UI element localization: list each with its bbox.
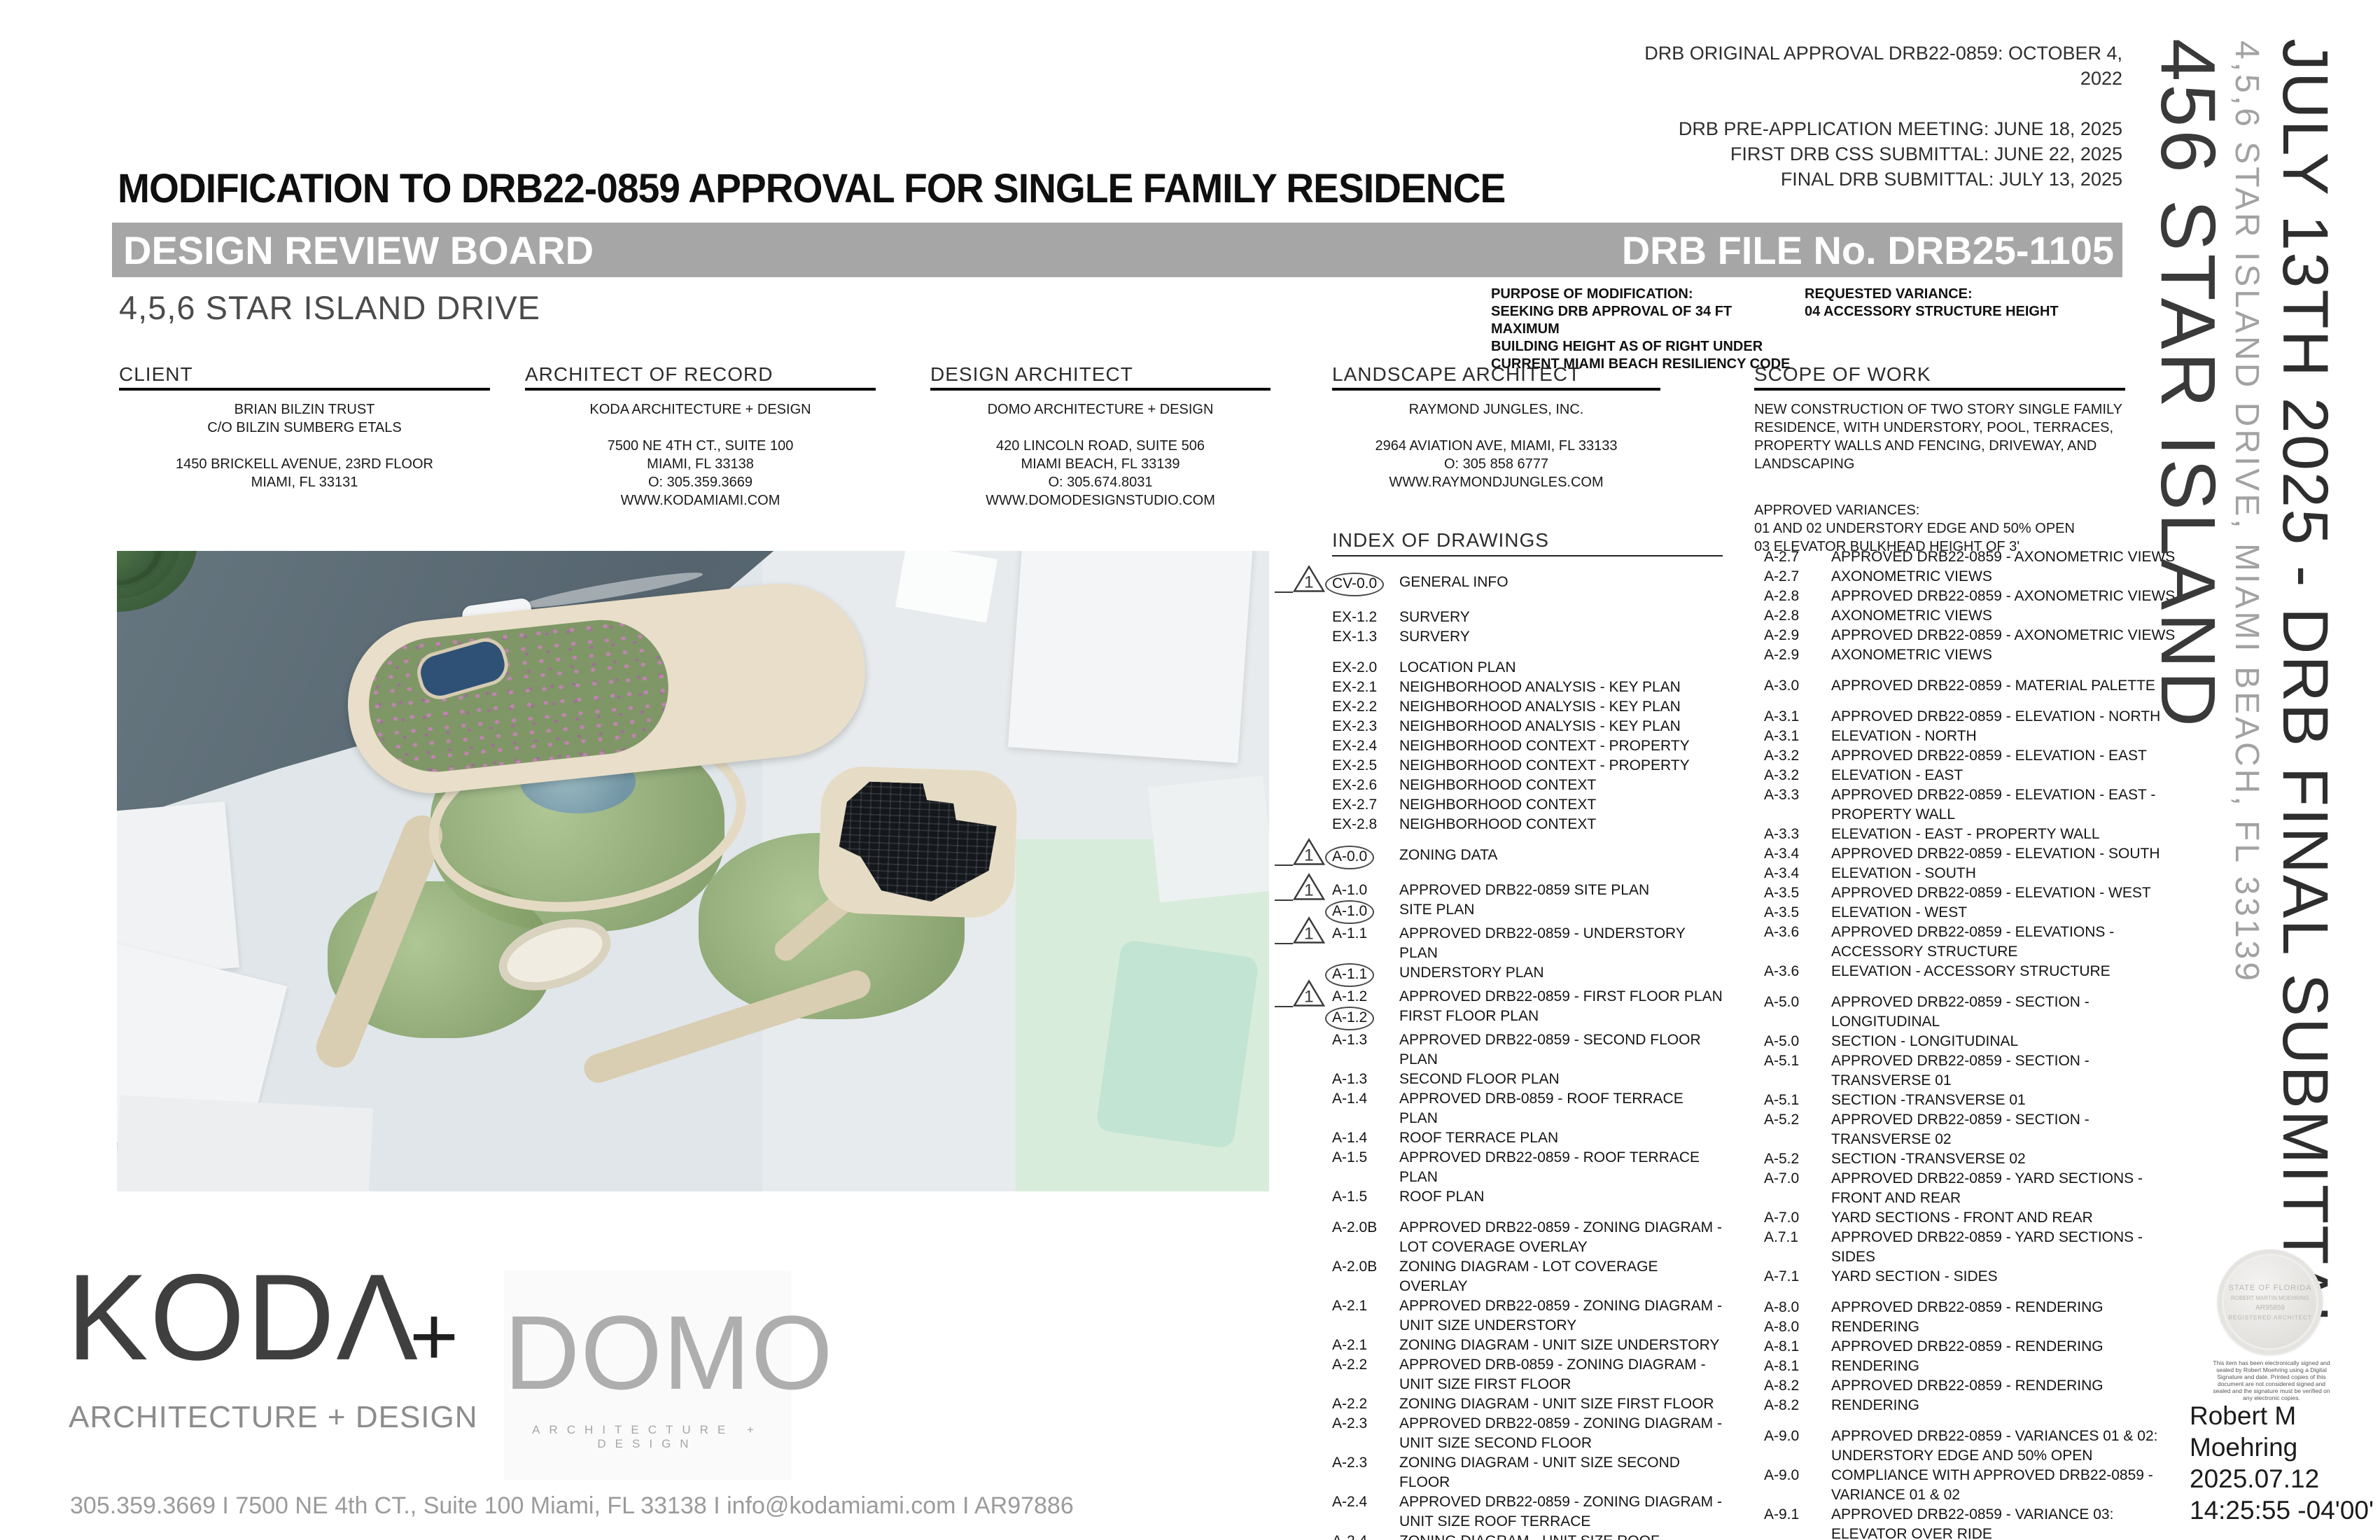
title-sheet: DRB ORIGINAL APPROVAL DRB22-0859: OCTOBE…	[0, 0, 2380, 1540]
sheet-number: A-2.9	[1764, 645, 1831, 665]
text-line: 2022	[1644, 66, 2122, 91]
sheet-number: A-3.2	[1764, 746, 1831, 766]
sheet-title: NEIGHBORHOOD CONTEXT - PROPERTY	[1399, 756, 1724, 776]
sheet-number: A-5.2	[1764, 1110, 1831, 1130]
sheet-number: EX-2.7	[1332, 795, 1399, 815]
sheet-title: APPROVED DRB22-0859 - YARD SECTIONS - FR…	[1831, 1169, 2177, 1208]
text-line	[525, 419, 876, 437]
text-line: 14:25:55 -04'00'	[2190, 1494, 2374, 1526]
sheet-number: A-3.0	[1764, 676, 1831, 696]
drawing-index-left-column: 1CV-0.0GENERAL INFOEX-1.2SURVERYEX-1.3SU…	[1332, 573, 1724, 1540]
drawing-index-row: A-2.4ZONING DIAGRAM - UNIT SIZE ROOF TER…	[1332, 1532, 1724, 1540]
sheet-title: SECOND FLOOR PLAN	[1399, 1070, 1724, 1089]
requested-variance: REQUESTED VARIANCE: 04 ACCESSORY STRUCTU…	[1805, 286, 2120, 321]
sheet-title: APPROVED DRB22-0859 - ELEVATION - SOUTH	[1831, 844, 2177, 864]
drawing-index-row: EX-2.3NEIGHBORHOOD ANALYSIS - KEY PLAN	[1332, 717, 1724, 736]
column-heading: LANDSCAPE ARCHITECT	[1332, 364, 1660, 385]
text-line: APPROVED VARIANCES:	[1754, 501, 2125, 519]
column-lines: DOMO ARCHITECTURE + DESIGN420 LINCOLN RO…	[930, 400, 1270, 510]
drawing-index-right-column: A-2.7APPROVED DRB22-0859 - AXONOMETRIC V…	[1764, 547, 2177, 1540]
drawing-index-row: A-2.0BZONING DIAGRAM - LOT COVERAGE OVER…	[1332, 1257, 1724, 1296]
sheet-title: RENDERING	[1831, 1357, 2177, 1376]
sheet-title: GENERAL INFO	[1399, 573, 1724, 592]
seal-disclaimer-text: This item has been electronically signed…	[2209, 1359, 2334, 1401]
domo-logo: DOMO	[504, 1300, 791, 1405]
drawing-index-row: 1CV-0.0GENERAL INFO	[1332, 573, 1724, 596]
digital-signature: Robert MMoehring2025.07.1214:25:55 -04'0…	[2190, 1400, 2374, 1526]
purpose-lines: SEEKING DRB APPROVAL OF 34 FT MAXIMUMBUI…	[1491, 303, 1802, 373]
sheet-title: APPROVED DRB22-0859 - SECOND FLOOR PLAN	[1399, 1030, 1724, 1070]
drawing-index-row: A-2.0BAPPROVED DRB22-0859 - ZONING DIAGR…	[1332, 1218, 1724, 1257]
sheet-number: A-3.5	[1764, 903, 1831, 923]
drawing-index-row: A-2.3APPROVED DRB22-0859 - ZONING DIAGRA…	[1332, 1414, 1724, 1453]
drawing-index-row: A-2.1APPROVED DRB22-0859 - ZONING DIAGRA…	[1332, 1296, 1724, 1336]
sheet-number: A-9.0	[1764, 1466, 1831, 1485]
sheet-title: YARD SECTION - SIDES	[1831, 1267, 2177, 1287]
drawing-index-row: EX-2.7NEIGHBORHOOD CONTEXT	[1332, 795, 1724, 815]
text-line: O: 305 858 6777	[1332, 455, 1660, 473]
sheet-title: APPROVED DRB22-0859 SITE PLAN	[1399, 881, 1724, 900]
svg-text:1: 1	[1304, 846, 1314, 864]
sheet-number: A-8.1	[1764, 1357, 1831, 1376]
text-line: KODA ARCHITECTURE + DESIGN	[525, 400, 876, 419]
text-line	[1332, 419, 1660, 437]
sheet-number: A-3.1	[1764, 707, 1831, 727]
sheet-title: APPROVED DRB-0859 - ROOF TERRACE PLAN	[1399, 1089, 1724, 1128]
drawing-index-row: A-2.9AXONOMETRIC VIEWS	[1764, 645, 2177, 665]
drawing-index-row: A-2.9APPROVED DRB22-0859 - AXONOMETRIC V…	[1764, 626, 2177, 645]
drawing-index-row: A-7.0APPROVED DRB22-0859 - YARD SECTIONS…	[1764, 1169, 2177, 1208]
column-rule	[119, 388, 490, 391]
drawing-index-row: A-7.0YARD SECTIONS - FRONT AND REAR	[1764, 1208, 2177, 1228]
column-heading: ARCHITECT OF RECORD	[525, 364, 876, 385]
sheet-number: A-9.1	[1764, 1505, 1831, 1525]
drawing-index-row: A-2.2APPROVED DRB-0859 - ZONING DIAGRAM …	[1332, 1355, 1724, 1394]
drawing-index-row: A-3.4ELEVATION - SOUTH	[1764, 864, 2177, 883]
sheet-number: A-3.3	[1764, 825, 1831, 844]
drawing-index-row: 1A-1.0APPROVED DRB22-0859 SITE PLAN	[1332, 881, 1724, 900]
text-line: C/O BILZIN SUMBERG ETALS	[119, 419, 490, 437]
drawing-index-row: A-5.1APPROVED DRB22-0859 - SECTION - TRA…	[1764, 1051, 2177, 1091]
drawing-index-row: A-3.3APPROVED DRB22-0859 - ELEVATION - E…	[1764, 785, 2177, 825]
text-line: DRB PRE-APPLICATION MEETING: JUNE 18, 20…	[1644, 116, 2122, 141]
sheet-number: EX-2.2	[1332, 697, 1399, 717]
variance-lines: 04 ACCESSORY STRUCTURE HEIGHT	[1805, 303, 2120, 321]
koda-tagline: ARCHITECTURE + DESIGN	[69, 1400, 478, 1435]
text-line: O: 305.359.3669	[525, 473, 876, 491]
sidebar-project-address: 4,5,6 STAR ISLAND DRIVE, MIAMI BEACH, FL…	[2227, 41, 2266, 983]
column-lines: RAYMOND JUNGLES, INC.2964 AVIATION AVE, …	[1332, 400, 1660, 491]
sheet-title: RENDERING	[1831, 1317, 2177, 1337]
sheet-title: APPROVED DRB22-0859 - SECTION - TRANSVER…	[1831, 1110, 2177, 1149]
drawing-index-row: A-8.1RENDERING	[1764, 1357, 2177, 1376]
sheet-title: ELEVATION - NORTH	[1831, 727, 2177, 746]
column-rule	[1332, 388, 1660, 391]
purpose-of-modification: PURPOSE OF MODIFICATION: SEEKING DRB APP…	[1491, 286, 1802, 373]
drawing-index-row: A-5.2APPROVED DRB22-0859 - SECTION - TRA…	[1764, 1110, 2177, 1149]
sheet-number: A-3.6	[1764, 923, 1831, 942]
drawing-index-row: EX-1.2SURVERY	[1332, 608, 1724, 627]
sheet-title: NEIGHBORHOOD CONTEXT	[1399, 795, 1724, 815]
sheet-title: SECTION -TRANSVERSE 01	[1831, 1091, 2177, 1110]
plus-sign: +	[409, 1288, 458, 1385]
render-neighbor-building	[1148, 776, 1269, 902]
text-line: 7500 NE 4TH CT., SUITE 100	[525, 437, 876, 455]
text-line: BUILDING HEIGHT AS OF RIGHT UNDER	[1491, 338, 1802, 356]
drawing-index-row: A-3.1ELEVATION - NORTH	[1764, 727, 2177, 746]
revision-cloud-icon: A-1.1	[1325, 963, 1374, 987]
sheet-title: ELEVATION - SOUTH	[1831, 864, 2177, 883]
sheet-number: A-1.4	[1332, 1128, 1399, 1148]
sheet-number: A-8.2	[1764, 1376, 1831, 1396]
sheet-number: A-1.2	[1332, 1007, 1399, 1030]
svg-text:1: 1	[1304, 987, 1314, 1006]
sheet-title: ELEVATION - WEST	[1831, 903, 2177, 923]
sheet-number: A-2.2	[1332, 1355, 1399, 1375]
sheet-number: A-7.0	[1764, 1169, 1831, 1189]
render-flower-roof-garden	[362, 613, 675, 779]
sheet-number: EX-2.4	[1332, 736, 1399, 756]
text-line: Robert M	[2190, 1400, 2374, 1431]
drawing-index-row: A-5.0APPROVED DRB22-0859 - SECTION - LON…	[1764, 993, 2177, 1032]
text-line: 2964 AVIATION AVE, MIAMI, FL 33133	[1332, 437, 1660, 455]
page-title: MODIFICATION TO DRB22-0859 APPROVAL FOR …	[118, 165, 1505, 212]
sheet-title: AXONOMETRIC VIEWS	[1831, 645, 2177, 665]
drawing-index-row: A-3.2ELEVATION - EAST	[1764, 766, 2177, 785]
column-rule	[930, 388, 1270, 391]
sheet-number: EX-2.1	[1332, 678, 1399, 697]
render-solar-panels	[837, 780, 998, 904]
sheet-title: APPROVED DRB22-0859 - UNDERSTORY PLAN	[1399, 924, 1724, 963]
footer-contact-line: 305.359.3669 I 7500 NE 4th CT., Suite 10…	[70, 1492, 1074, 1520]
drawing-index-row: 1A-1.1APPROVED DRB22-0859 - UNDERSTORY P…	[1332, 924, 1724, 963]
domo-logo-block: DOMO ARCHITECTURE + DESIGN	[504, 1270, 791, 1480]
sheet-title: AXONOMETRIC VIEWS	[1831, 567, 2177, 587]
text-line: 01 AND 02 UNDERSTORY EDGE AND 50% OPEN	[1754, 519, 2125, 538]
sheet-number: A-1.4	[1332, 1089, 1399, 1109]
submittal-dates: DRB ORIGINAL APPROVAL DRB22-0859: OCTOBE…	[1644, 41, 2122, 192]
drawing-index-row: EX-2.2NEIGHBORHOOD ANALYSIS - KEY PLAN	[1332, 697, 1724, 717]
drawing-index-row: A-2.4APPROVED DRB22-0859 - ZONING DIAGRA…	[1332, 1492, 1724, 1532]
sheet-title: UNDERSTORY PLAN	[1399, 963, 1724, 983]
drawing-index-row: A-7.1YARD SECTION - SIDES	[1764, 1267, 2177, 1287]
scope-paragraph: NEW CONSTRUCTION OF TWO STORY SINGLE FAM…	[1754, 400, 2125, 473]
text-line	[1644, 91, 2122, 116]
sheet-title: APPROVED DRB22-0859 - MATERIAL PALETTE	[1831, 676, 2177, 696]
text-line: BRIAN BILZIN TRUST	[119, 400, 490, 419]
sheet-number: A-2.1	[1332, 1296, 1399, 1316]
sheet-title: APPROVED DRB22-0859 - ELEVATION - EAST -…	[1831, 785, 2177, 825]
sheet-number: EX-1.2	[1332, 608, 1399, 627]
sheet-number: A-1.1	[1332, 963, 1399, 987]
sheet-title: ZONING DIAGRAM - UNIT SIZE ROOF TERRACE	[1399, 1532, 1724, 1540]
drawing-index-row: EX-2.5NEIGHBORHOOD CONTEXT - PROPERTY	[1332, 756, 1724, 776]
sheet-title: APPROVED DRB22-0859 - FIRST FLOOR PLAN	[1399, 987, 1724, 1007]
sidebar-submittal-title: JULY 13TH 2025 - DRB FINAL SUBMITTAL	[2268, 38, 2341, 1343]
band-drb-file-number: DRB FILE No. DRB25-1105	[1622, 223, 2114, 277]
architect-seal: STATE OF FLORIDA ROBERT MARTIN MOEHRING …	[2218, 1249, 2323, 1354]
contact-column-client: CLIENTBRIAN BILZIN TRUSTC/O BILZIN SUMBE…	[119, 364, 490, 491]
revision-triangle-icon: 1	[1293, 916, 1325, 945]
contact-column-landscape-architect: LANDSCAPE ARCHITECTRAYMOND JUNGLES, INC.…	[1332, 364, 1660, 491]
drawing-index-row: A-3.1APPROVED DRB22-0859 - ELEVATION - N…	[1764, 707, 2177, 727]
sheet-number: A-2.3	[1332, 1453, 1399, 1473]
revision-triangle-icon: 1	[1293, 837, 1325, 867]
drawing-index-row: A-1.4ROOF TERRACE PLAN	[1332, 1128, 1724, 1148]
svg-text:1: 1	[1304, 573, 1314, 591]
sheet-title: APPROVED DRB22-0859 - ELEVATION - WEST	[1831, 883, 2177, 903]
drawing-index-row: A-8.2APPROVED DRB22-0859 - RENDERING	[1764, 1376, 2177, 1396]
column-lines: KODA ARCHITECTURE + DESIGN7500 NE 4TH CT…	[525, 400, 876, 510]
render-neighbor-pool	[1095, 939, 1259, 1149]
drawing-index-row: A-3.0APPROVED DRB22-0859 - MATERIAL PALE…	[1764, 676, 2177, 696]
band-design-review-board: DESIGN REVIEW BOARD	[123, 223, 594, 277]
text-line: RAYMOND JUNGLES, INC.	[1332, 400, 1660, 419]
sheet-number: A-3.4	[1764, 864, 1831, 883]
sheet-number: A-5.0	[1764, 993, 1831, 1012]
revision-triangle-icon: 1	[1293, 979, 1325, 1008]
drawing-index-row: A.7.1APPROVED DRB22-0859 - YARD SECTIONS…	[1764, 1228, 2177, 1267]
text-line: MIAMI BEACH, FL 33139	[930, 455, 1270, 473]
drawing-index-row: A-1.2FIRST FLOOR PLAN	[1332, 1007, 1724, 1030]
sheet-title: ELEVATION - EAST	[1831, 766, 2177, 785]
drawing-index-row: A-9.0COMPLIANCE WITH APPROVED DRB22-0859…	[1764, 1466, 2177, 1505]
sheet-number: A-7.0	[1764, 1208, 1831, 1228]
sheet-number: A-8.1	[1764, 1337, 1831, 1357]
sheet-number: A-2.4	[1332, 1532, 1399, 1540]
text-line	[930, 419, 1270, 437]
drawing-index-row: A-5.0SECTION - LONGITUDINAL	[1764, 1032, 2177, 1051]
revision-cloud-icon: A-1.2	[1325, 1007, 1374, 1030]
drawing-index-row: A-3.5APPROVED DRB22-0859 - ELEVATION - W…	[1764, 883, 2177, 903]
column-heading: CLIENT	[119, 364, 490, 385]
drawing-index-row: A-1.5APPROVED DRB22-0859 - ROOF TERRACE …	[1332, 1148, 1724, 1187]
drawing-index-row: A-1.3SECOND FLOOR PLAN	[1332, 1070, 1724, 1089]
sheet-title: APPROVED DRB22-0859 - AXONOMETRIC VIEWS	[1831, 547, 2177, 567]
domo-tagline: ARCHITECTURE + DESIGN	[504, 1423, 791, 1451]
text-line: SEEKING DRB APPROVAL OF 34 FT MAXIMUM	[1491, 303, 1802, 338]
sheet-title: NEIGHBORHOOD CONTEXT	[1399, 776, 1724, 795]
drawing-index-row: EX-2.1NEIGHBORHOOD ANALYSIS - KEY PLAN	[1332, 678, 1724, 697]
drawing-index-row: A-1.5ROOF PLAN	[1332, 1187, 1724, 1207]
sheet-number: A-2.3	[1332, 1414, 1399, 1434]
sheet-title: ZONING DIAGRAM - LOT COVERAGE OVERLAY	[1399, 1257, 1724, 1296]
drawing-index-row: A-5.2SECTION -TRANSVERSE 02	[1764, 1149, 2177, 1169]
text-line	[119, 437, 490, 455]
sheet-number: A-2.8	[1764, 606, 1831, 626]
drawing-index-row: A-9.1APPROVED DRB22-0859 - VARIANCE 03: …	[1764, 1505, 2177, 1540]
sheet-title: APPROVED DRB22-0859 - ZONING DIAGRAM - U…	[1399, 1414, 1724, 1453]
revision-triangle-icon: 1	[1293, 564, 1325, 594]
sheet-number: A-8.2	[1764, 1396, 1831, 1415]
sheet-title: SECTION - LONGITUDINAL	[1831, 1032, 2177, 1051]
sheet-title: APPROVED DRB22-0859 - VARIANCES 01 & 02:…	[1831, 1427, 2177, 1466]
sheet-title: APPROVED DRB22-0859 - ZONING DIAGRAM - U…	[1399, 1296, 1724, 1336]
sheet-number: A-3.3	[1764, 785, 1831, 805]
sheet-number: A-2.8	[1764, 587, 1831, 606]
drawing-index-row: A-2.8APPROVED DRB22-0859 - AXONOMETRIC V…	[1764, 587, 2177, 606]
drawing-index-row: 1A-1.2APPROVED DRB22-0859 - FIRST FLOOR …	[1332, 987, 1724, 1007]
sheet-number: A-5.1	[1764, 1051, 1831, 1071]
text-line: Moehring	[2190, 1431, 2374, 1463]
sheet-number: A-3.1	[1764, 727, 1831, 746]
scope-of-work: SCOPE OF WORK NEW CONSTRUCTION OF TWO ST…	[1754, 364, 2125, 556]
drawing-index-row: A-3.6ELEVATION - ACCESSORY STRUCTURE	[1764, 962, 2177, 981]
sheet-title: APPROVED DRB22-0859 - RENDERING	[1831, 1298, 2177, 1317]
render-accessory-structure	[817, 765, 1018, 919]
drawing-index-row: EX-2.4NEIGHBORHOOD CONTEXT - PROPERTY	[1332, 736, 1724, 756]
drawing-index-row: A-8.1APPROVED DRB22-0859 - RENDERING	[1764, 1337, 2177, 1357]
drb-band: DESIGN REVIEW BOARD DRB FILE No. DRB25-1…	[112, 223, 2122, 277]
sheet-title: SITE PLAN	[1399, 900, 1724, 920]
sheet-number: A-1.3	[1332, 1070, 1399, 1089]
drawing-index-row: A-3.2APPROVED DRB22-0859 - ELEVATION - E…	[1764, 746, 2177, 766]
scope-rule	[1754, 388, 2125, 391]
contact-column-design-architect: DESIGN ARCHITECTDOMO ARCHITECTURE + DESI…	[930, 364, 1270, 510]
sheet-title: ZONING DIAGRAM - UNIT SIZE FIRST FLOOR	[1399, 1394, 1724, 1414]
sheet-number: A-3.5	[1764, 883, 1831, 903]
text-line: WWW.KODAMIAMI.COM	[525, 491, 876, 510]
sheet-title: ROOF PLAN	[1399, 1187, 1724, 1207]
sheet-title: FIRST FLOOR PLAN	[1399, 1007, 1724, 1026]
column-rule	[525, 388, 876, 391]
sheet-title: NEIGHBORHOOD ANALYSIS - KEY PLAN	[1399, 697, 1724, 717]
purpose-heading: PURPOSE OF MODIFICATION:	[1491, 286, 1802, 303]
drawing-index-row: A-3.6APPROVED DRB22-0859 - ELEVATIONS - …	[1764, 923, 2177, 962]
drawing-index-row: A-2.1ZONING DIAGRAM - UNIT SIZE UNDERSTO…	[1332, 1336, 1724, 1355]
sheet-title: APPROVED DRB22-0859 - YARD SECTIONS - SI…	[1831, 1228, 2177, 1267]
sheet-number: A-2.4	[1332, 1492, 1399, 1512]
drawing-index-row: 1A-0.0ZONING DATA	[1332, 846, 1724, 869]
sheet-title: APPROVED DRB22-0859 - AXONOMETRIC VIEWS	[1831, 626, 2177, 645]
sheet-title: ELEVATION - ACCESSORY STRUCTURE	[1831, 962, 2177, 981]
text-line: O: 305.674.8031	[930, 473, 1270, 491]
sheet-title: NEIGHBORHOOD CONTEXT - PROPERTY	[1399, 736, 1724, 756]
drawing-index-row: A-5.1SECTION -TRANSVERSE 01	[1764, 1091, 2177, 1110]
text-line: 1450 BRICKELL AVENUE, 23RD FLOOR	[119, 455, 490, 473]
sheet-number: EX-2.5	[1332, 756, 1399, 776]
drawing-index-row: A-2.8AXONOMETRIC VIEWS	[1764, 606, 2177, 626]
text-line: WWW.RAYMONDJUNGLES.COM	[1332, 473, 1660, 491]
sheet-title: APPROVED DRB22-0859 - VARIANCE 03: ELEVA…	[1831, 1505, 2177, 1540]
drawing-index-row: A-1.0SITE PLAN	[1332, 900, 1724, 924]
column-lines: BRIAN BILZIN TRUSTC/O BILZIN SUMBERG ETA…	[119, 400, 490, 491]
sheet-number: CV-0.0	[1332, 573, 1399, 596]
sheet-title: ELEVATION - EAST - PROPERTY WALL	[1831, 825, 2177, 844]
scope-heading: SCOPE OF WORK	[1754, 364, 2125, 385]
sheet-title: APPROVED DRB22-0859 - RENDERING	[1831, 1376, 2177, 1396]
sheet-number: A-1.1	[1332, 924, 1399, 944]
sheet-number: A-8.0	[1764, 1317, 1831, 1337]
contact-column-architect-of-record: ARCHITECT OF RECORDKODA ARCHITECTURE + D…	[525, 364, 876, 510]
site-rendering	[117, 551, 1269, 1191]
drawing-index-row: A-8.0RENDERING	[1764, 1317, 2177, 1337]
sheet-title: APPROVED DRB-0859 - ZONING DIAGRAM - UNI…	[1399, 1355, 1724, 1394]
revision-cloud-icon: A-1.0	[1325, 900, 1374, 924]
sheet-title: YARD SECTIONS - FRONT AND REAR	[1831, 1208, 2177, 1228]
sidebar-project-name: 456 STAR ISLAND	[2143, 38, 2232, 729]
sheet-title: APPROVED DRB22-0859 - SECTION - LONGITUD…	[1831, 993, 2177, 1032]
sheet-title: ROOF TERRACE PLAN	[1399, 1128, 1724, 1148]
sheet-number: A-2.1	[1332, 1336, 1399, 1355]
sheet-title: ZONING DIAGRAM - UNIT SIZE UNDERSTORY	[1399, 1336, 1724, 1355]
sheet-title: AXONOMETRIC VIEWS	[1831, 606, 2177, 626]
sheet-number: A-5.2	[1764, 1149, 1831, 1169]
sheet-title: APPROVED DRB22-0859 - RENDERING	[1831, 1337, 2177, 1357]
drawing-index-row: A-3.3ELEVATION - EAST - PROPERTY WALL	[1764, 825, 2177, 844]
svg-text:1: 1	[1304, 924, 1314, 943]
sheet-number: A-9.0	[1764, 1427, 1831, 1446]
sheet-title: APPROVED DRB22-0859 - ZONING DIAGRAM - L…	[1399, 1218, 1724, 1257]
sheet-title: SECTION -TRANSVERSE 02	[1831, 1149, 2177, 1169]
sheet-number: A-2.9	[1764, 626, 1831, 645]
text-line: MIAMI, FL 33131	[119, 473, 490, 491]
sheet-number: A-1.2	[1332, 987, 1399, 1007]
sheet-title: APPROVED DRB22-0859 - ELEVATION - EAST	[1831, 746, 2177, 766]
sheet-title: SURVERY	[1399, 608, 1724, 627]
sheet-number: A-2.0B	[1332, 1257, 1399, 1277]
drawing-index-row: A-8.2RENDERING	[1764, 1396, 2177, 1415]
sheet-number: A-2.0B	[1332, 1218, 1399, 1238]
sheet-number: EX-2.6	[1332, 776, 1399, 795]
sheet-number: A-1.0	[1332, 900, 1399, 924]
sheet-number: A-8.0	[1764, 1298, 1831, 1317]
variance-heading: REQUESTED VARIANCE:	[1805, 286, 2120, 303]
drawing-index-row: A-1.1UNDERSTORY PLAN	[1332, 963, 1724, 987]
sheet-title: APPROVED DRB22-0859 - ELEVATIONS - ACCES…	[1831, 923, 2177, 962]
drawing-index-row: A-2.2ZONING DIAGRAM - UNIT SIZE FIRST FL…	[1332, 1394, 1724, 1414]
drawing-index-row: A-1.3APPROVED DRB22-0859 - SECOND FLOOR …	[1332, 1030, 1724, 1070]
sheet-title: LOCATION PLAN	[1399, 658, 1724, 678]
sheet-number: A-3.2	[1764, 766, 1831, 785]
render-neighbor-building	[1008, 551, 1254, 764]
sheet-number: A-2.2	[1332, 1394, 1399, 1414]
drawing-index-row: A-2.7APPROVED DRB22-0859 - AXONOMETRIC V…	[1764, 547, 2177, 567]
drawing-index-row: A-3.4APPROVED DRB22-0859 - ELEVATION - S…	[1764, 844, 2177, 864]
drawing-index-row: EX-1.3SURVERY	[1332, 627, 1724, 647]
revision-cloud-icon: CV-0.0	[1325, 573, 1384, 596]
index-of-drawings-heading: INDEX OF DRAWINGS	[1332, 530, 1723, 556]
koda-logo: KODΛ	[66, 1256, 419, 1379]
sheet-title: ZONING DATA	[1399, 846, 1724, 865]
sheet-title: NEIGHBORHOOD CONTEXT	[1399, 815, 1724, 834]
sheet-number: EX-2.8	[1332, 815, 1399, 834]
sheet-number: A-7.1	[1764, 1267, 1831, 1287]
sheet-number: A-1.5	[1332, 1187, 1399, 1207]
drawing-index-row: EX-2.6NEIGHBORHOOD CONTEXT	[1332, 776, 1724, 795]
sheet-number: A-2.7	[1764, 567, 1831, 587]
sheet-number: EX-1.3	[1332, 627, 1399, 647]
text-line: FIRST DRB CSS SUBMITTAL: JUNE 22, 2025	[1644, 141, 2122, 167]
sheet-number: A-1.5	[1332, 1148, 1399, 1168]
sheet-title: NEIGHBORHOOD ANALYSIS - KEY PLAN	[1399, 717, 1724, 736]
sheet-number: A-3.6	[1764, 962, 1831, 981]
sheet-number: A.7.1	[1764, 1228, 1831, 1247]
drawing-index-row: EX-2.0LOCATION PLAN	[1332, 658, 1724, 678]
text-line: 2025.07.12	[2190, 1463, 2374, 1494]
text-line: WWW.DOMODESIGNSTUDIO.COM	[930, 491, 1270, 510]
sheet-number: EX-2.3	[1332, 717, 1399, 736]
sheet-title: APPROVED DRB22-0859 - ROOF TERRACE PLAN	[1399, 1148, 1724, 1187]
sheet-title: RENDERING	[1831, 1396, 2177, 1415]
revision-triangle-icon: 1	[1293, 872, 1325, 902]
sheet-number: A-2.7	[1764, 547, 1831, 567]
sheet-title: APPROVED DRB22-0859 - SECTION - TRANSVER…	[1831, 1051, 2177, 1091]
column-heading: DESIGN ARCHITECT	[930, 364, 1270, 385]
render-neighbor-building	[117, 1095, 373, 1191]
project-address-subtitle: 4,5,6 STAR ISLAND DRIVE	[119, 288, 540, 327]
drawing-index-row: A-9.0APPROVED DRB22-0859 - VARIANCES 01 …	[1764, 1427, 2177, 1466]
